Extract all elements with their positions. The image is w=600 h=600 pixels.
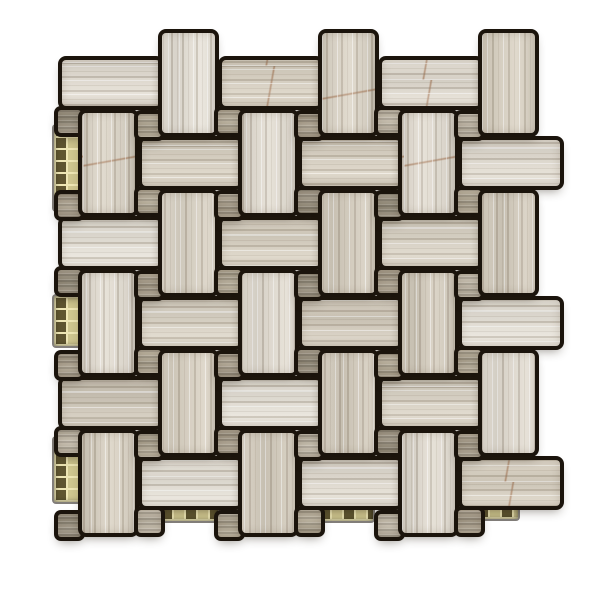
stone-tile-horizontal <box>302 300 400 346</box>
stone-tile-vertical <box>162 33 215 133</box>
stone-dot-tile <box>378 270 401 293</box>
stone-dot-tile <box>138 434 161 457</box>
stone-tile-horizontal <box>142 460 240 506</box>
stone-tile-vertical <box>402 273 455 373</box>
stone-tile-vertical <box>82 433 135 533</box>
stone-tile-vertical <box>402 113 455 213</box>
stone-tile-horizontal <box>382 380 480 426</box>
stone-dot-tile <box>458 190 481 213</box>
stone-dot-tile <box>378 354 401 377</box>
stone-dot-tile <box>58 110 81 133</box>
stone-dot-tile <box>458 350 481 373</box>
stone-dot-tile <box>58 354 81 377</box>
stone-tile-horizontal <box>462 140 560 186</box>
stone-dot-tile <box>298 350 321 373</box>
stone-tile-horizontal <box>62 220 160 266</box>
stone-dot-tile <box>58 514 81 537</box>
stone-tile-vertical <box>482 353 535 453</box>
stone-dot-tile <box>378 430 401 453</box>
stone-tile-horizontal <box>382 220 480 266</box>
stone-tile-horizontal <box>222 220 320 266</box>
stone-tile-horizontal <box>382 60 480 106</box>
stone-dot-tile <box>138 510 161 533</box>
stone-dot-tile <box>58 194 81 217</box>
stone-dot-tile <box>218 430 241 453</box>
stone-tile-horizontal <box>462 300 560 346</box>
stone-tile-vertical <box>242 113 295 213</box>
stone-tile-horizontal <box>302 460 400 506</box>
stone-dot-tile <box>138 114 161 137</box>
stone-tile-horizontal <box>62 60 160 106</box>
stone-tile-horizontal <box>142 300 240 346</box>
stone-tile-horizontal <box>222 380 320 426</box>
stone-tile-vertical <box>482 193 535 293</box>
stone-tile-horizontal <box>222 60 320 106</box>
stone-dot-tile <box>218 110 241 133</box>
stone-dot-tile <box>458 114 481 137</box>
stone-tile-vertical <box>482 33 535 133</box>
stone-dot-tile <box>378 110 401 133</box>
stone-dot-tile <box>298 274 321 297</box>
stone-dot-tile <box>138 190 161 213</box>
stone-dot-tile <box>218 514 241 537</box>
stone-dot-tile <box>458 274 481 297</box>
stone-dot-tile <box>58 270 81 293</box>
stone-tile-vertical <box>242 433 295 533</box>
stone-dot-tile <box>458 434 481 457</box>
stone-dot-tile <box>298 510 321 533</box>
stone-dot-tile <box>138 274 161 297</box>
stone-tile-vertical <box>82 113 135 213</box>
stone-dot-tile <box>378 514 401 537</box>
mosaic-sheet-photo <box>0 0 600 600</box>
stone-tile-vertical <box>242 273 295 373</box>
stone-dot-tile <box>298 190 321 213</box>
stone-tile-horizontal <box>462 460 560 506</box>
stone-tile-vertical <box>82 273 135 373</box>
stone-dot-tile <box>58 430 81 453</box>
stone-dot-tile <box>378 194 401 217</box>
stone-dot-tile <box>298 434 321 457</box>
stone-tile-vertical <box>162 193 215 293</box>
glass-mosaic-patch <box>54 296 84 346</box>
stone-dot-tile <box>298 114 321 137</box>
stone-dot-tile <box>218 354 241 377</box>
stone-tile-vertical <box>322 193 375 293</box>
stone-tile-vertical <box>322 353 375 453</box>
stone-dot-tile <box>218 270 241 293</box>
stone-tile-vertical <box>162 353 215 453</box>
stone-tile-vertical <box>402 433 455 533</box>
stone-tile-horizontal <box>302 140 400 186</box>
stone-tile-horizontal <box>142 140 240 186</box>
stone-dot-tile <box>138 350 161 373</box>
stone-dot-tile <box>458 510 481 533</box>
stone-tile-vertical <box>322 33 375 133</box>
stone-dot-tile <box>218 194 241 217</box>
stone-tile-horizontal <box>62 380 160 426</box>
